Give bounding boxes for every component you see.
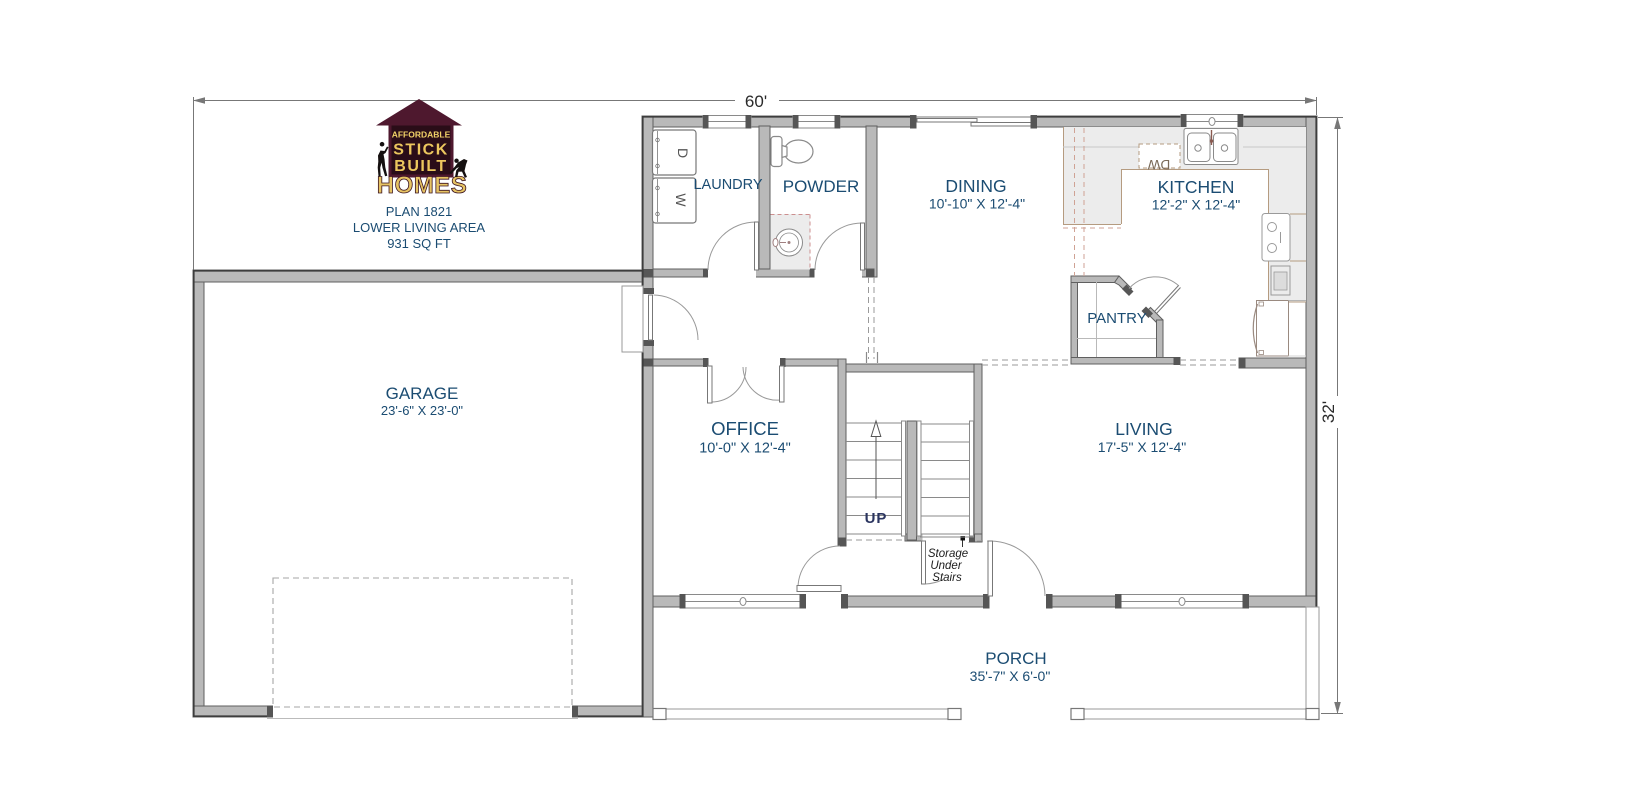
svg-text:LAUNDRY: LAUNDRY <box>693 177 762 193</box>
svg-text:PORCH: PORCH <box>985 649 1046 668</box>
svg-text:60': 60' <box>745 92 767 111</box>
svg-text:PLAN 1821: PLAN 1821 <box>386 204 453 219</box>
svg-text:KITCHEN: KITCHEN <box>1158 177 1235 197</box>
svg-text:12'-2" X 12'-4": 12'-2" X 12'-4" <box>1152 197 1240 213</box>
svg-text:Under: Under <box>930 560 962 572</box>
svg-text:10'-0" X 12'-4": 10'-0" X 12'-4" <box>699 441 791 457</box>
svg-text:GARAGE: GARAGE <box>386 384 459 403</box>
svg-text:Stairs: Stairs <box>932 572 962 584</box>
svg-text:Storage: Storage <box>928 548 968 560</box>
svg-text:35'-7" X 6'-0": 35'-7" X 6'-0" <box>970 668 1051 684</box>
svg-text:LOWER LIVING AREA: LOWER LIVING AREA <box>353 220 486 235</box>
svg-text:OFFICE: OFFICE <box>711 418 779 439</box>
svg-text:LIVING: LIVING <box>1115 419 1172 439</box>
svg-text:D: D <box>675 148 691 158</box>
svg-text:17'-5" X 12'-4": 17'-5" X 12'-4" <box>1098 439 1186 455</box>
svg-text:AFFORDABLE: AFFORDABLE <box>392 130 451 140</box>
svg-text:HOMES: HOMES <box>377 172 468 199</box>
svg-text:POWDER: POWDER <box>783 177 860 196</box>
svg-text:UP: UP <box>865 510 888 527</box>
svg-text:W: W <box>673 193 689 207</box>
svg-text:23'-6" X 23'-0": 23'-6" X 23'-0" <box>381 403 464 418</box>
svg-text:931 SQ FT: 931 SQ FT <box>387 236 451 251</box>
svg-text:STICK: STICK <box>393 142 449 159</box>
svg-text:10'-10" X 12'-4": 10'-10" X 12'-4" <box>929 196 1025 212</box>
svg-text:DINING: DINING <box>945 176 1006 196</box>
svg-text:DW: DW <box>1148 157 1171 172</box>
svg-text:32': 32' <box>1319 401 1338 423</box>
svg-text:PANTRY: PANTRY <box>1087 310 1146 327</box>
